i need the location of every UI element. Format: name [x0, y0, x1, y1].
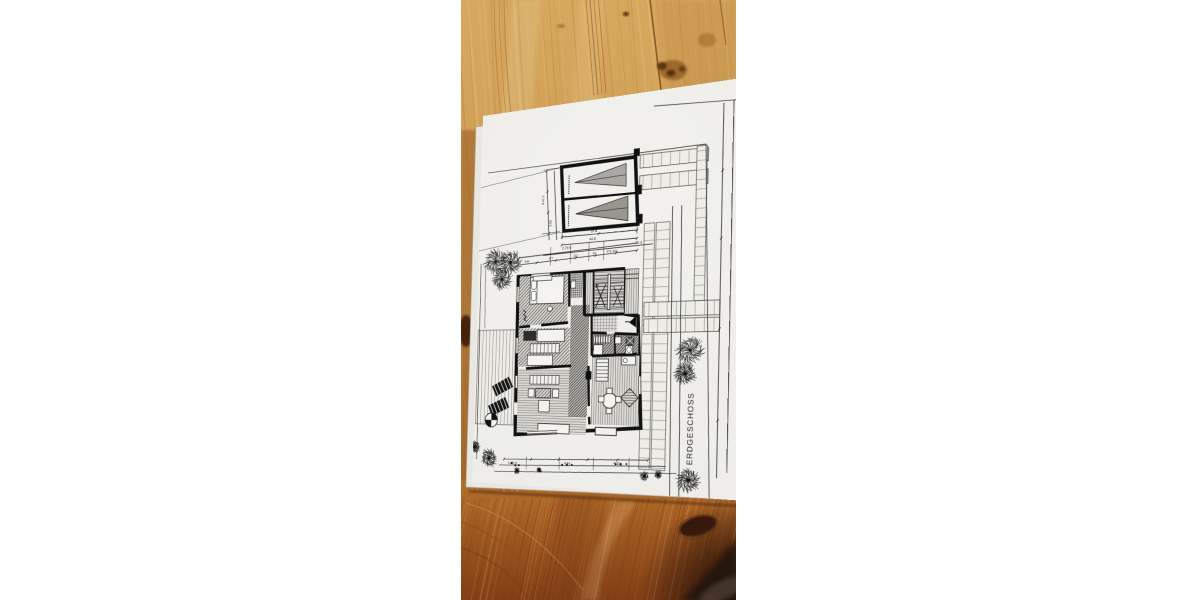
svg-text:44 8: 44 8 — [589, 236, 596, 241]
svg-text:477: 477 — [549, 256, 554, 261]
svg-text:472 101: 472 101 — [607, 248, 618, 253]
svg-text:2.79.9: 2.79.9 — [562, 246, 571, 251]
svg-text:15 8: 15 8 — [590, 228, 597, 233]
svg-text:1.48.11: 1.48.11 — [508, 460, 518, 465]
svg-text:112: 112 — [573, 253, 578, 258]
svg-text:8.41.5: 8.41.5 — [541, 195, 545, 205]
svg-text:ERDGESCHOSS: ERDGESCHOSS — [686, 392, 696, 465]
svg-text:4.11: 4.11 — [613, 461, 620, 466]
svg-text:3.08: 3.08 — [548, 220, 552, 227]
svg-text:248: 248 — [525, 259, 530, 264]
